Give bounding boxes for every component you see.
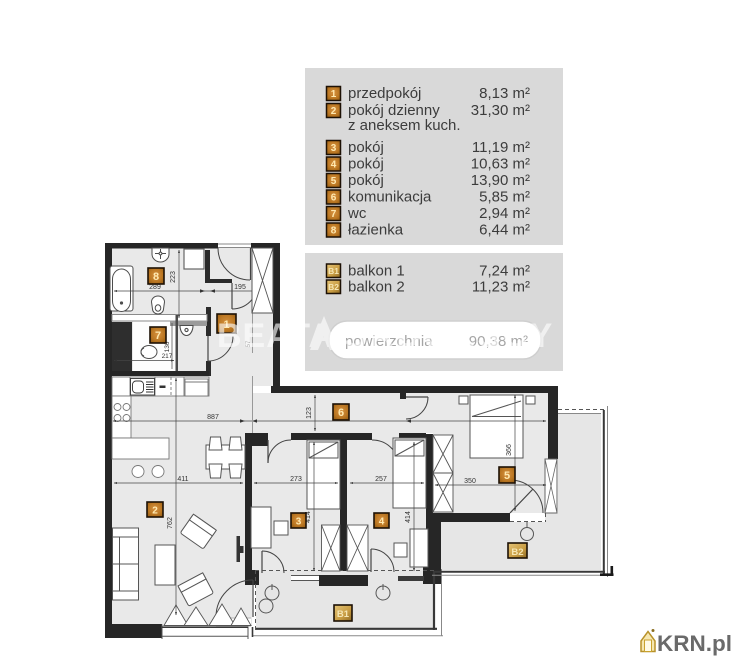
svg-text:11,19 m²: 11,19 m² [472, 139, 530, 156]
svg-text:B2: B2 [511, 547, 523, 558]
svg-text:2: 2 [152, 506, 158, 517]
svg-text:B2: B2 [328, 282, 339, 292]
svg-text:2: 2 [331, 106, 337, 117]
svg-text:SADURSCY: SADURSCY [344, 317, 555, 355]
svg-text:31,30 m²: 31,30 m² [471, 102, 530, 119]
svg-text:balkon 1: balkon 1 [348, 263, 405, 280]
svg-text:6: 6 [338, 407, 344, 419]
svg-text:5: 5 [504, 470, 510, 482]
svg-text:2,94 m²: 2,94 m² [479, 205, 530, 222]
svg-text:195: 195 [234, 284, 246, 291]
svg-text:komunikacja: komunikacja [348, 189, 432, 206]
svg-text:przedpokój: przedpokój [348, 85, 421, 102]
svg-text:pokój: pokój [348, 172, 384, 189]
svg-text:4: 4 [379, 517, 385, 528]
svg-text:8: 8 [153, 271, 159, 283]
svg-text:366: 366 [506, 444, 513, 456]
svg-text:887: 887 [207, 414, 219, 421]
svg-text:8: 8 [331, 226, 337, 237]
svg-text:pokój: pokój [348, 139, 384, 156]
svg-text:10,63 m²: 10,63 m² [471, 156, 530, 173]
svg-text:123: 123 [306, 407, 313, 419]
svg-text:223: 223 [170, 271, 177, 283]
svg-text:pokój: pokój [348, 156, 384, 173]
svg-text:3: 3 [331, 143, 337, 154]
svg-text:350: 350 [464, 478, 476, 485]
svg-text:6,44 m²: 6,44 m² [479, 222, 530, 239]
svg-text:273: 273 [290, 476, 302, 483]
svg-text:411: 411 [177, 476, 188, 483]
svg-text:762: 762 [167, 517, 174, 529]
svg-text:8,13 m²: 8,13 m² [479, 85, 530, 102]
svg-text:balkon 2: balkon 2 [348, 279, 405, 296]
svg-text:11,23 m²: 11,23 m² [472, 279, 530, 296]
svg-text:289: 289 [149, 284, 161, 291]
svg-text:217: 217 [162, 353, 173, 360]
svg-text:B1: B1 [328, 266, 339, 276]
svg-text:7: 7 [331, 209, 337, 220]
svg-text:KRN.pl: KRN.pl [657, 631, 732, 656]
svg-text:257: 257 [375, 476, 387, 483]
svg-text:5,85 m²: 5,85 m² [479, 189, 530, 206]
svg-text:5: 5 [331, 176, 337, 187]
svg-text:łazienka: łazienka [348, 222, 404, 239]
svg-text:414: 414 [405, 511, 412, 523]
svg-text:7: 7 [155, 330, 161, 342]
svg-text:13,90 m²: 13,90 m² [471, 172, 530, 189]
svg-text:1: 1 [331, 89, 337, 100]
svg-text:B1: B1 [337, 609, 350, 620]
svg-text:4: 4 [331, 160, 337, 171]
svg-text:wc: wc [347, 205, 367, 222]
svg-text:6: 6 [331, 193, 337, 204]
svg-text:7,24 m²: 7,24 m² [479, 263, 530, 280]
svg-text:3: 3 [296, 517, 302, 528]
svg-text:z aneksem kuch.: z aneksem kuch. [348, 117, 461, 134]
